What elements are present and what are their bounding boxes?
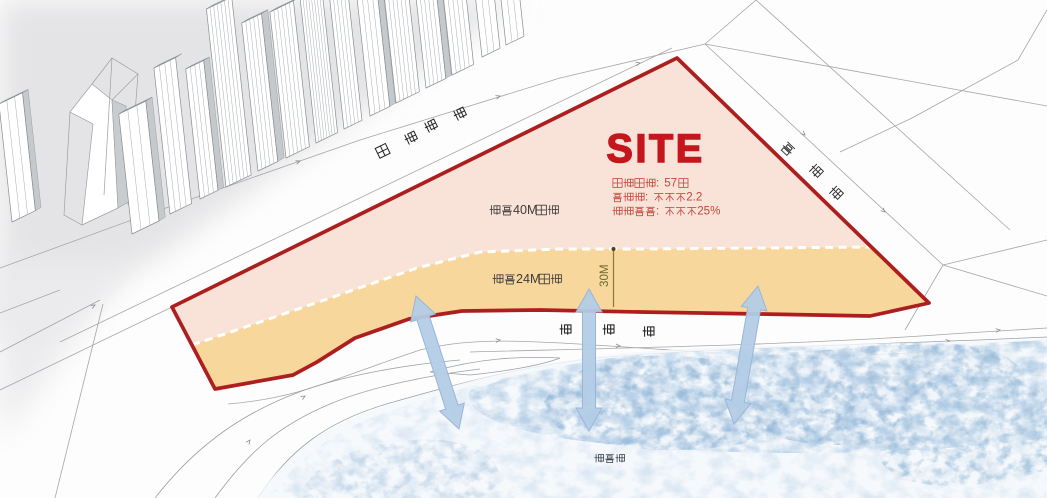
svg-text:30M: 30M (598, 264, 611, 287)
svg-text:SITE: SITE (607, 127, 705, 171)
svg-text::: : (656, 177, 659, 190)
svg-text:25%: 25% (697, 205, 720, 218)
svg-text:2.2: 2.2 (686, 191, 702, 204)
svg-text::: : (645, 191, 648, 204)
svg-text:57: 57 (664, 177, 677, 190)
svg-text:40M: 40M (513, 203, 538, 217)
svg-text:24M: 24M (516, 272, 541, 286)
svg-text::: : (656, 205, 659, 218)
